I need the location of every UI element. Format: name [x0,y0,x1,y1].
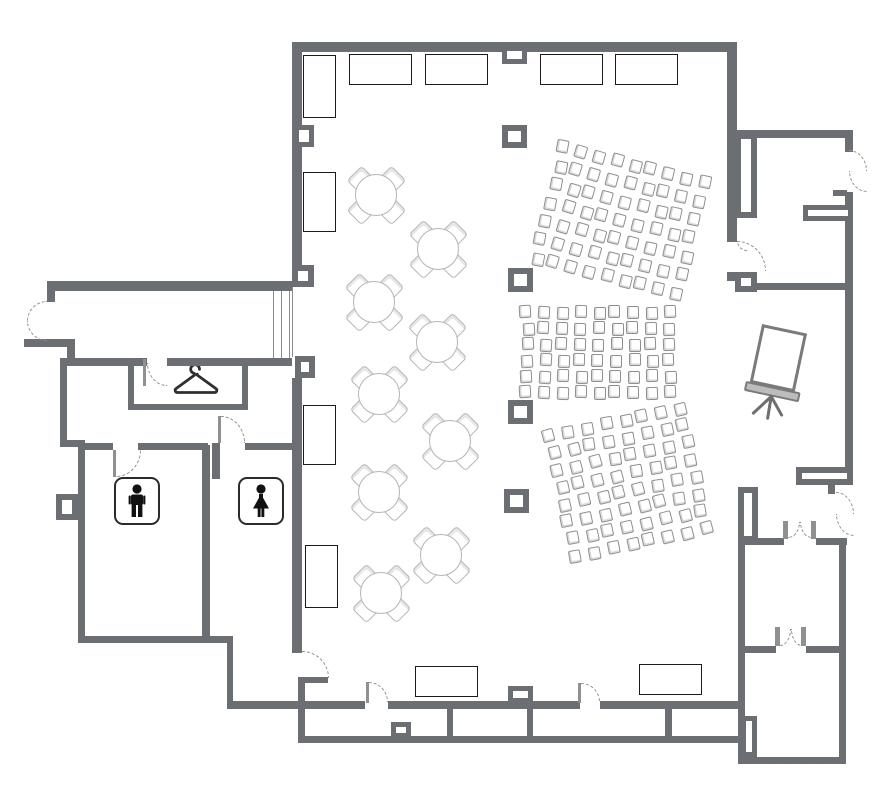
theater-chair [569,460,584,476]
theater-chair [600,267,615,283]
theater-chair [533,231,547,246]
theater-chair [573,338,585,351]
theater-chair [549,177,563,192]
theater-chair [556,322,569,335]
theater-chair [599,190,614,206]
floor-plan [0,0,894,807]
round-table [344,163,408,227]
coat-hanger-icon [172,363,220,399]
door-leaf [801,627,806,646]
wall-segment [128,404,248,410]
door-swing-arc [147,363,167,386]
theater-chair [549,463,564,478]
column [502,46,527,64]
door-leaf [113,450,116,477]
door-swing-arc [836,514,854,536]
coat-hanger-glyph [172,363,220,399]
column [504,489,529,513]
theater-chair [608,305,620,318]
door-swing-arc [27,301,47,321]
theater-chair [654,204,669,219]
round-table-top [358,373,400,415]
wall-segment [833,190,847,196]
theater-chair [645,322,657,335]
theater-chair [643,443,657,458]
theater-chair [692,195,706,210]
wall-segment [298,736,740,743]
wall-segment [845,192,853,485]
theater-chair [662,440,676,455]
theater-chair [670,473,684,488]
wall-segment [447,709,453,736]
theater-chair [568,242,583,258]
door-swing-arc [369,682,388,702]
theater-chair [611,337,623,350]
theater-chair [590,472,605,488]
theater-chair [629,463,643,478]
column [292,265,314,287]
door-swing-arc [788,522,800,538]
column [508,268,533,292]
theater-chair [660,529,675,544]
theater-chair [664,385,677,398]
theater-chair [537,320,550,334]
round-table-top [417,228,459,270]
theater-chair [644,336,656,349]
theater-chair [606,540,620,555]
theater-chair [587,546,601,561]
wall-segment [741,646,776,653]
banquet-table [425,54,488,85]
theater-chair [596,489,611,504]
round-table-top [355,174,397,216]
theater-chair [608,451,622,466]
theater-chair [623,446,637,461]
door-leaf [811,521,816,539]
theater-chair [576,371,588,384]
theater-chair [591,150,606,166]
screen-canvas [750,324,807,392]
theater-chair [692,488,706,503]
theater-chair [669,206,684,221]
wall-segment [527,709,533,736]
theater-chair [654,405,669,420]
theater-chair [672,491,686,506]
wall-segment [242,358,248,410]
theater-chair [573,144,588,160]
round-table [349,561,413,625]
theater-chair [568,161,583,177]
theater-chair [628,158,643,174]
theater-chair [623,175,638,191]
theater-chair [556,480,571,495]
theater-chair [538,371,551,385]
theater-chair [573,352,585,365]
theater-chair [645,307,657,320]
theater-chair [651,281,666,296]
theater-chair [656,264,671,279]
theater-chair [522,322,535,336]
theater-chair [661,166,676,181]
theater-chair [575,305,587,318]
theater-chair [658,510,673,526]
theater-chair [662,244,677,259]
theater-chair [641,531,656,546]
theater-chair [575,385,587,398]
round-table-top [353,281,395,323]
theater-chair [674,189,689,204]
wall-segment [212,443,220,479]
theater-chair [638,258,653,273]
wall-segment [47,281,55,302]
theater-chair [629,339,641,352]
theater-chair [633,275,648,290]
theater-chair [627,306,639,319]
column [294,125,314,147]
door-leaf [783,521,788,539]
theater-chair [610,469,625,485]
stair-line [273,291,274,358]
wall-segment [806,646,841,653]
theater-chair [591,369,603,382]
wall-segment [292,378,302,653]
round-table [347,362,411,426]
theater-chair [647,355,659,368]
theater-chair [555,219,570,235]
theater-chair [519,304,532,318]
theater-chair [637,498,652,514]
theater-chair [611,484,626,500]
door-swing-arc [116,450,141,477]
theater-chair [577,492,592,507]
theater-chair [680,526,695,542]
wall-segment [128,358,134,410]
theater-chair [561,425,575,440]
theater-chair [662,352,675,365]
banquet-table [349,54,412,85]
theater-chair [609,370,621,383]
theater-chair [673,402,688,417]
theater-chair [585,528,599,543]
theater-chair [600,416,614,431]
theater-chair [626,321,638,334]
theater-chair [612,323,624,336]
door-leaf [366,682,369,703]
womens-restroom-icon [238,477,284,525]
theater-chair [567,442,582,458]
wall-segment [245,443,302,450]
door-leaf [578,683,581,703]
wall-segment [85,443,113,450]
theater-chair [581,422,595,437]
theater-chair [561,199,576,215]
theater-chair [608,385,620,398]
wall-segment [138,443,208,450]
theater-chair [586,167,601,183]
wall-segment [292,52,302,265]
column [508,400,533,424]
stair-line [289,291,290,358]
theater-chair [540,338,553,352]
theater-chair [667,227,682,242]
column [803,205,853,221]
door-swing-arc [581,683,600,702]
wall-segment [47,281,292,291]
theater-chair [645,387,657,400]
theater-chair [669,287,683,302]
seating-block [521,306,681,402]
theater-chair [581,184,596,200]
theater-chair [594,387,606,400]
round-table [406,217,470,281]
theater-chair [634,408,648,423]
banquet-table [303,55,336,118]
theater-chair [521,337,534,351]
round-table [405,310,469,374]
seating-block [543,399,721,568]
column [735,133,757,218]
door-swing-arc [780,629,791,646]
theater-chair [556,387,569,400]
theater-chair [582,437,596,452]
door-swing-arc [221,416,245,443]
theater-chair [675,267,689,282]
theater-chair [592,228,607,244]
round-table-top [358,471,400,513]
theater-chair [680,250,694,265]
column [502,125,527,148]
theater-chair [602,434,616,449]
theater-chair [643,160,658,176]
column [796,467,853,485]
round-table-top [420,534,462,576]
theater-chair [538,386,551,400]
column [391,722,411,738]
theater-chair [547,445,562,461]
theater-chair [563,259,578,275]
banquet-table [303,405,336,465]
theater-chair [545,253,560,269]
theater-chair [649,461,663,476]
door-swing-arc [27,321,47,341]
theater-chair [687,212,701,227]
theater-chair [579,510,593,525]
wall-segment [665,707,672,737]
theater-chair [656,183,671,198]
banquet-table [639,664,702,695]
theater-chair [574,323,586,336]
theater-chair [593,321,605,334]
theater-chair [587,245,602,261]
theater-chair [626,537,640,552]
theater-chair [570,475,585,490]
theater-chair [531,252,545,267]
theater-chair [620,252,635,268]
wall-segment [78,447,85,643]
theater-chair [557,369,570,382]
theater-chair [617,196,632,212]
column [735,272,757,292]
theater-chair [651,479,665,494]
theater-chair [610,152,625,168]
banquet-table [415,666,478,697]
column [508,686,533,703]
theater-chair [539,353,552,367]
theater-chair [698,175,712,190]
theater-chair [699,520,714,536]
theater-chair [591,354,603,367]
theater-chair [678,508,693,524]
wall-segment [227,643,233,707]
column [741,716,757,757]
theater-chair [541,427,556,443]
theater-chair [519,384,532,398]
theater-chair [556,139,570,154]
door-swing-arc [849,171,867,192]
round-table [347,460,411,524]
door-leaf [218,416,221,443]
round-table-top [416,321,458,363]
door-swing-arc [849,150,867,171]
door-leaf [143,359,146,386]
theater-chair [631,481,646,497]
theater-chair [566,182,581,198]
theater-chair [566,530,580,545]
theater-chair [579,205,594,221]
theater-chair [641,181,656,197]
woman-glyph [248,484,274,518]
theater-chair [621,431,635,446]
theater-chair [605,251,620,267]
wall-segment [741,757,844,764]
theater-chair [649,221,664,236]
projection-screen [739,323,813,425]
theater-chair [689,470,703,485]
wall-segment [755,283,847,290]
theater-chair [604,173,619,189]
theater-chair [538,306,551,320]
stair-line [292,287,293,357]
theater-chair [630,218,645,234]
theater-chair [640,425,654,440]
wall-segment [167,358,292,366]
wall-segment [388,701,580,709]
theater-chair [628,371,640,384]
theater-chair [679,172,694,187]
banquet-table [615,54,678,85]
theater-chair [619,413,633,428]
theater-chair [555,336,568,349]
wall-segment [298,677,305,743]
theater-chair [550,236,565,252]
theater-chair [652,493,667,509]
theater-chair [662,338,675,351]
theater-chair [617,501,632,516]
banquet-table [305,545,338,608]
theater-chair [610,355,622,368]
round-table-top [360,572,402,614]
theater-chair [636,198,651,214]
round-table [418,409,482,473]
theater-chair [558,498,572,513]
theater-chair [681,434,695,449]
theater-chair [559,513,573,528]
theater-chair [568,549,582,564]
theater-chair [520,370,533,384]
wall-segment [227,701,365,709]
theater-chair [574,222,589,238]
theater-chair [558,354,571,367]
round-table-top [429,420,471,462]
theater-chair [639,517,654,532]
mens-restroom-icon [114,477,160,525]
round-table [342,270,406,334]
seating-block [528,140,717,308]
wall-segment [60,358,67,447]
theater-chair [599,507,614,522]
door-swing-arc [836,492,854,514]
theater-chair [612,212,627,228]
theater-chair [538,214,552,229]
banquet-table [540,54,603,85]
wall-segment [67,339,75,366]
theater-chair [627,386,639,399]
theater-chair [693,503,707,518]
theater-chair [675,417,690,432]
theater-chair [643,241,658,256]
theater-chair [594,307,606,320]
theater-chair [664,305,677,318]
column [295,356,315,378]
theater-chair [682,229,696,244]
man-glyph [124,484,150,518]
theater-chair [592,339,604,352]
column [56,494,78,520]
banquet-table [303,172,336,232]
theater-chair [660,422,674,437]
theater-chair [646,369,658,382]
theater-chair [664,455,678,470]
wall-segment [202,445,210,643]
theater-chair [600,522,614,537]
theater-chair [625,235,640,251]
theater-chair [620,519,635,534]
theater-chair [665,370,678,383]
theater-chair [607,229,622,245]
column [738,487,758,542]
door-leaf [775,627,780,646]
round-table [409,523,473,587]
theater-chair [543,197,557,212]
theater-chair [618,273,633,289]
theater-chair [556,307,569,320]
wall-segment [60,440,85,447]
theater-chair [629,353,641,366]
theater-chair [521,355,534,369]
theater-chair [581,265,596,281]
door-swing-arc [302,651,329,678]
theater-chair [554,160,568,175]
theater-chair [588,454,603,470]
wall-segment [75,358,147,366]
theater-chair [683,452,697,467]
stair-line [281,291,282,358]
theater-chair [663,323,676,336]
theater-chair [594,207,609,223]
